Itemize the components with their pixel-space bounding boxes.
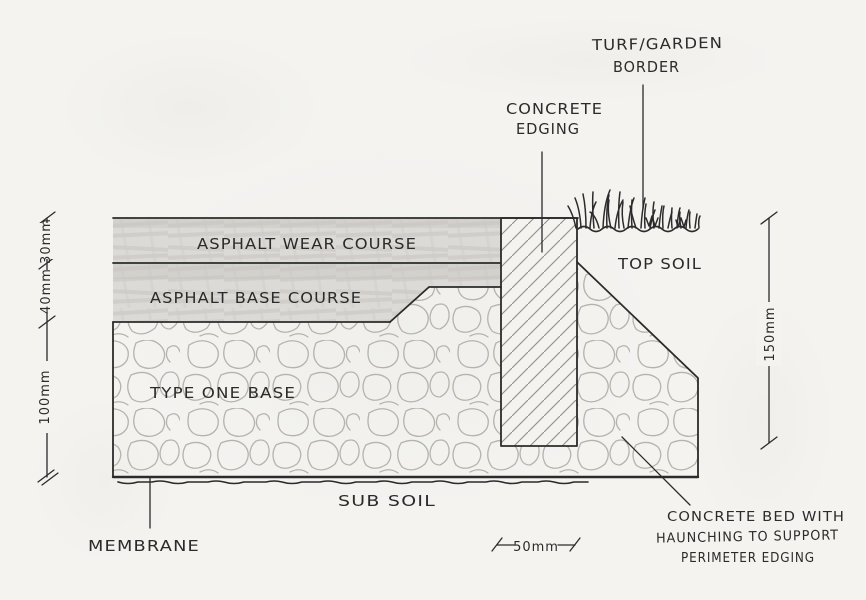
dimension-wear-course-30mm: 30mm	[39, 218, 54, 264]
label-concrete-bed-line1: CONCRETE BED WITH	[667, 509, 845, 525]
label-turf-garden-border-line2: BORDER	[613, 58, 680, 76]
dimension-left-stack: 30mm 40mm 100mm	[33, 212, 58, 485]
label-concrete-bed-line3: PERIMETER EDGING	[681, 550, 815, 566]
label-asphalt-base-course: ASPHALT BASE COURSE	[150, 289, 362, 307]
label-membrane: MEMBRANE	[88, 537, 200, 555]
label-top-soil: TOP SOIL	[617, 255, 702, 273]
sub-soil-squiggle	[118, 481, 588, 484]
label-concrete-edging-line2: EDGING	[516, 120, 580, 138]
dimension-right-150mm: 150mm	[756, 212, 782, 449]
dimension-edging-depth-150mm: 150mm	[763, 306, 778, 361]
scanned-drawing-page: 30mm 40mm 100mm 150mm 50mm TURF/GARDEN B…	[0, 0, 866, 600]
label-sub-soil: SUB SOIL	[338, 492, 436, 510]
grass-tufts	[568, 190, 700, 228]
dimension-bottom-50mm: 50mm	[492, 538, 580, 555]
dimension-type-one-100mm: 100mm	[38, 369, 53, 424]
label-concrete-edging-line1: CONCRETE	[506, 100, 603, 118]
dimension-base-course-40mm: 40mm	[39, 268, 54, 314]
label-type-one-base: TYPE ONE BASE	[149, 384, 296, 402]
label-asphalt-wear-course: ASPHALT WEAR COURSE	[197, 235, 417, 253]
top-soil-squiggle	[578, 227, 698, 232]
construction-detail-drawing: 30mm 40mm 100mm 150mm 50mm TURF/GARDEN B…	[0, 0, 866, 600]
concrete-edging-block	[501, 218, 577, 446]
dimension-edging-width-50mm: 50mm	[513, 540, 559, 555]
label-turf-garden-border-line1: TURF/GARDEN	[591, 34, 723, 54]
label-concrete-bed-line2: HAUNCHING TO SUPPORT	[656, 527, 839, 546]
